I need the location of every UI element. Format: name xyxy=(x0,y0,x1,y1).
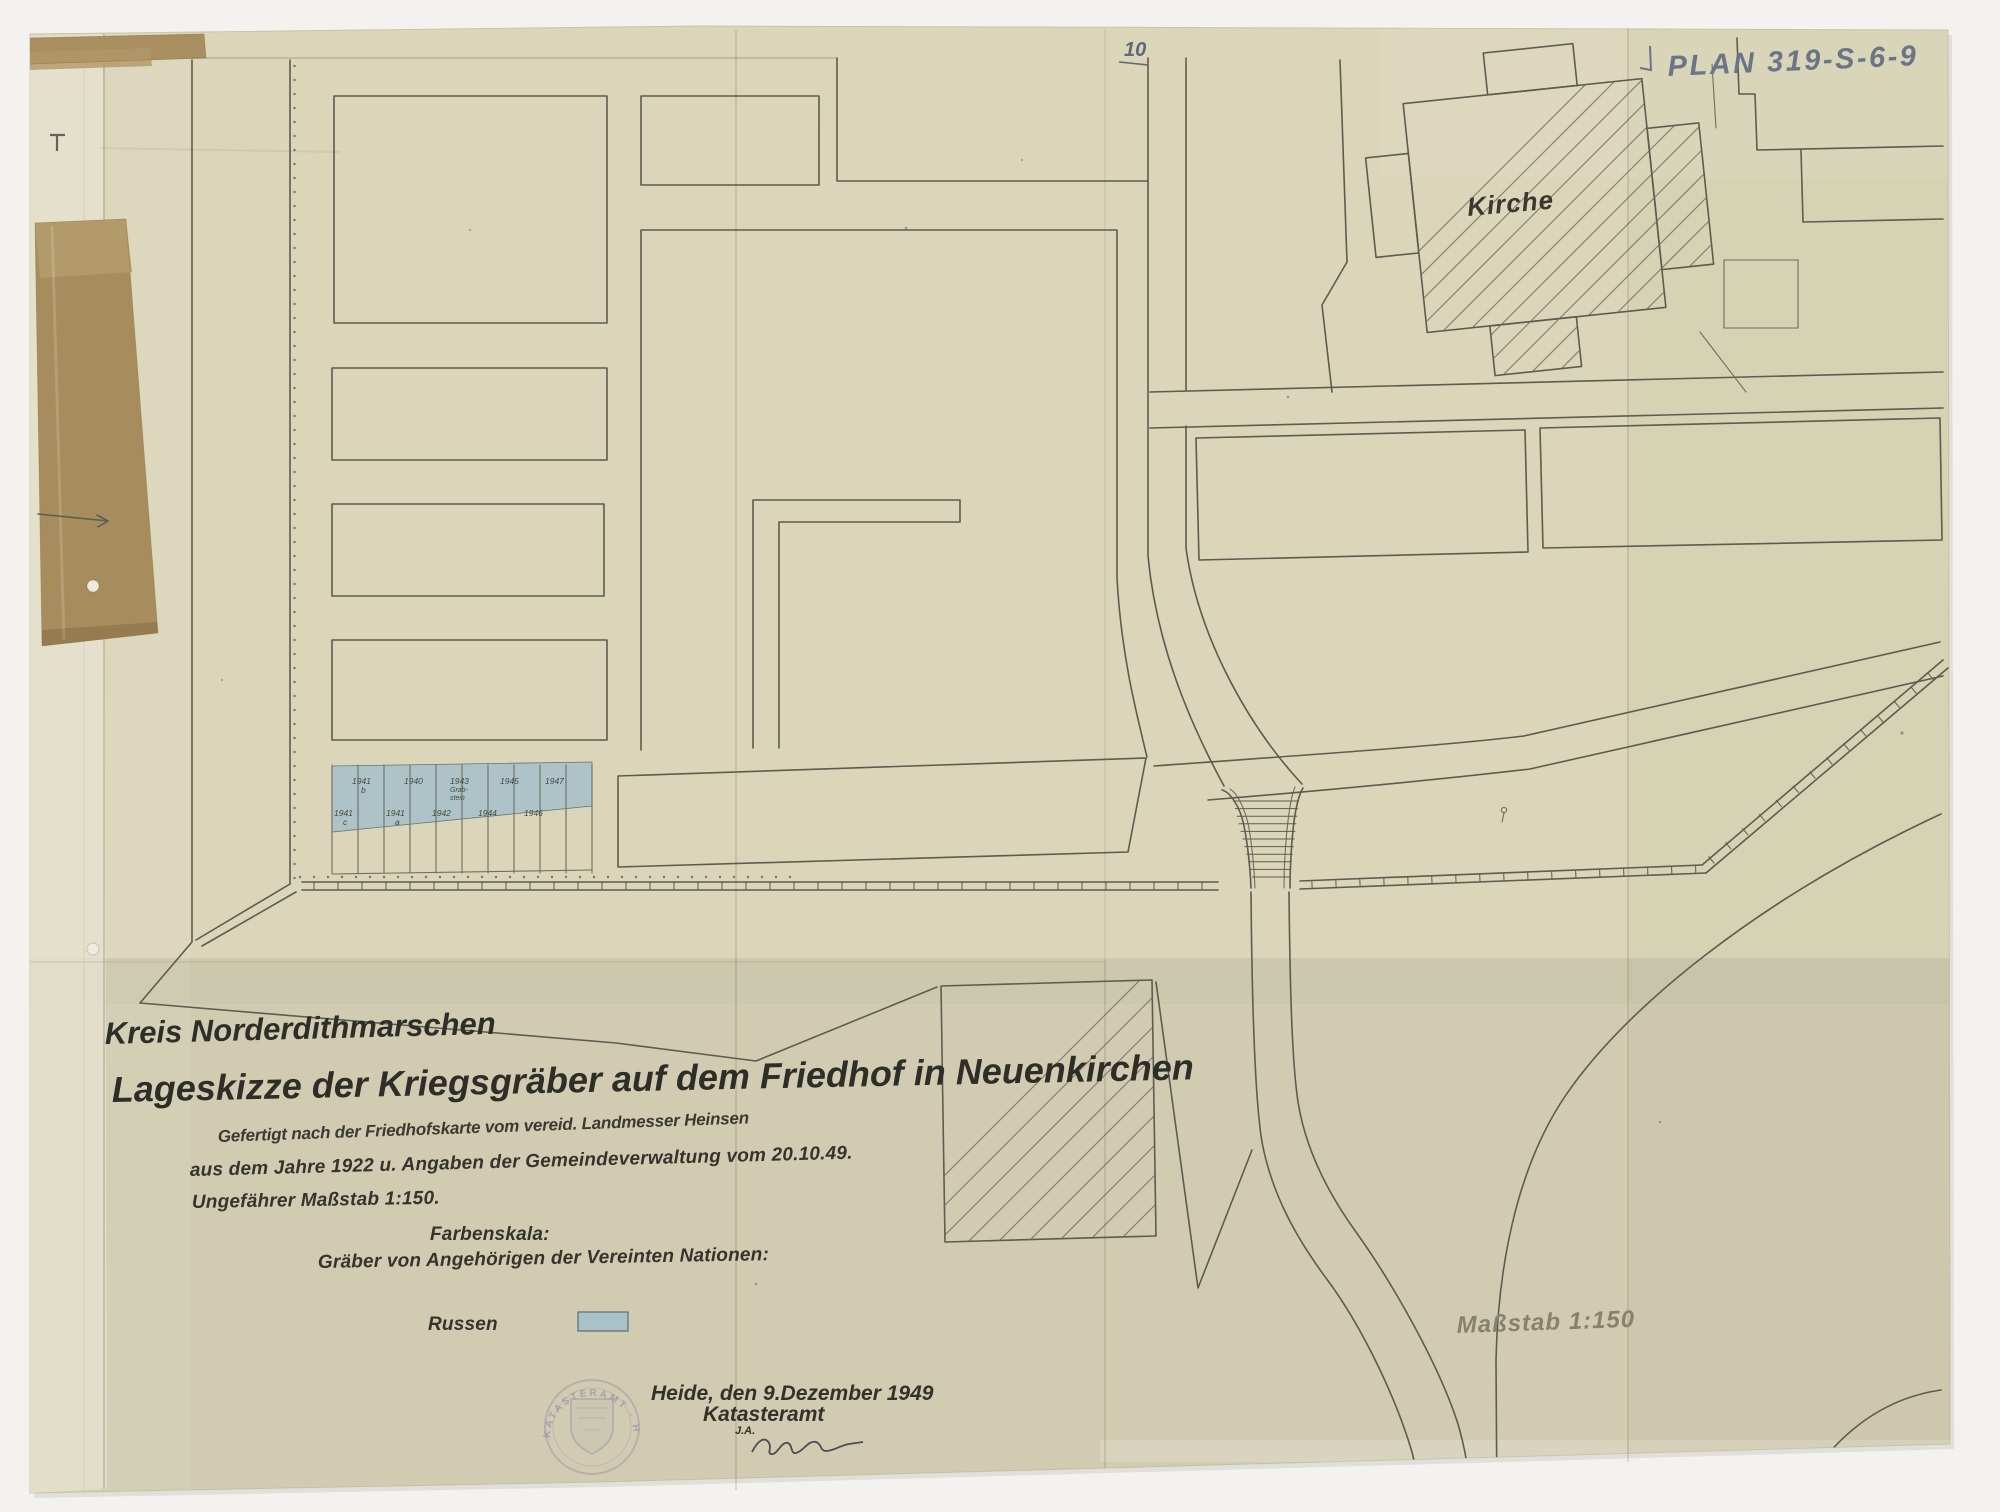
legend-entry-label: Russen xyxy=(428,1314,498,1335)
grave-year-label: 1945 xyxy=(500,776,519,786)
map-svg: 1941b19401943Grab-stein194519471941c1941… xyxy=(0,0,2000,1512)
svg-text:a: a xyxy=(395,817,400,827)
svg-text:10: 10 xyxy=(1124,39,1146,61)
svg-text:stein: stein xyxy=(450,795,465,802)
svg-text:Ungefährer Maßstab 1:150.: Ungefährer Maßstab 1:150. xyxy=(192,1188,440,1213)
grave-year-label: 1940 xyxy=(404,776,423,786)
grave-year-label: 1946 xyxy=(524,808,543,818)
legend-swatch xyxy=(578,1312,628,1331)
office-name: Katasteramt xyxy=(703,1403,825,1426)
svg-text:b: b xyxy=(361,785,366,795)
grave-year-label: 1943 xyxy=(450,776,469,786)
dateline: Heide, den 9.Dezember 1949 xyxy=(651,1382,934,1405)
scanned-plan-page: 1941b19401943Grab-stein194519471941c1941… xyxy=(0,0,2000,1512)
grave-year-label: 1942 xyxy=(432,808,451,818)
svg-text:Grab-: Grab- xyxy=(450,787,469,794)
punch-hole xyxy=(87,580,99,592)
office-initials: J.A. xyxy=(735,1425,755,1437)
grave-year-label: 1947 xyxy=(545,776,564,786)
legend-heading: Farbenskala: xyxy=(430,1224,550,1245)
grave-year-label: 1944 xyxy=(478,808,497,818)
punch-hole xyxy=(87,943,99,955)
